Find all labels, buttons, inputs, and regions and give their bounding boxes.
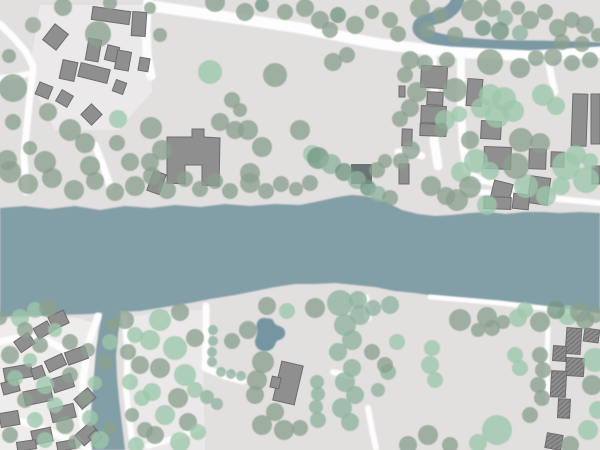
tree — [510, 58, 530, 78]
tree — [86, 172, 104, 190]
building — [427, 92, 444, 106]
tree — [149, 309, 171, 331]
tree — [125, 176, 145, 196]
tree — [522, 407, 538, 423]
tree — [140, 117, 162, 139]
tree — [443, 78, 467, 102]
tree — [310, 412, 326, 428]
tree — [236, 371, 246, 381]
tree — [236, 3, 254, 21]
tree — [226, 121, 244, 139]
tree — [246, 386, 264, 404]
tree — [82, 410, 98, 426]
tree — [240, 163, 260, 183]
tree — [32, 337, 48, 353]
tree — [186, 329, 204, 347]
building-hatched — [583, 328, 600, 343]
tree — [547, 97, 565, 115]
tree — [424, 340, 440, 356]
tree — [503, 153, 529, 179]
tree — [131, 356, 149, 374]
tree — [121, 153, 139, 171]
tree — [158, 181, 176, 199]
tree — [0, 161, 21, 183]
tree — [447, 27, 463, 43]
tree — [322, 22, 338, 38]
tree — [327, 290, 353, 316]
tree — [25, 17, 41, 33]
tree — [389, 334, 405, 350]
tree — [1, 346, 19, 364]
tree — [439, 52, 455, 68]
tree — [496, 315, 510, 329]
tree — [329, 343, 347, 361]
tree — [81, 343, 95, 357]
tree — [78, 391, 92, 405]
tree — [75, 133, 95, 153]
tree — [532, 347, 548, 363]
tree — [207, 357, 217, 367]
tree — [23, 353, 37, 367]
tree — [143, 383, 161, 401]
tree — [109, 110, 127, 128]
tree — [365, 5, 379, 19]
tree — [23, 141, 37, 155]
tree — [277, 4, 293, 20]
tree — [582, 52, 598, 68]
tree — [62, 334, 78, 350]
tree — [252, 351, 274, 373]
tree — [2, 427, 18, 443]
tree — [2, 49, 16, 63]
building — [270, 376, 281, 389]
tree — [48, 323, 62, 337]
tree — [42, 168, 62, 188]
tree — [27, 412, 43, 428]
tree — [302, 175, 318, 191]
tree — [392, 111, 408, 127]
tree — [122, 374, 138, 390]
tree — [198, 60, 222, 84]
building-hatched — [550, 371, 566, 398]
tree — [481, 162, 499, 180]
tree — [274, 420, 294, 440]
tree — [68, 435, 82, 449]
building — [114, 50, 131, 71]
tree — [140, 330, 160, 350]
tree — [574, 36, 590, 52]
tree — [144, 2, 156, 14]
tree — [56, 416, 74, 434]
tree — [309, 400, 323, 414]
tree — [365, 300, 381, 316]
tree — [37, 432, 53, 448]
tree — [106, 183, 124, 201]
tree — [233, 103, 247, 117]
tree — [341, 413, 359, 431]
tree — [528, 50, 544, 66]
map-canvas[interactable] — [0, 0, 600, 450]
tree — [177, 171, 193, 187]
tree — [155, 405, 175, 425]
tree — [258, 297, 276, 315]
tree — [554, 34, 570, 50]
tree — [153, 28, 167, 42]
tree — [547, 301, 565, 319]
tree — [421, 356, 439, 374]
tree — [381, 296, 399, 314]
tree — [578, 420, 598, 440]
building-hatched — [565, 357, 584, 376]
tree — [103, 421, 117, 435]
tree — [418, 425, 438, 445]
tree — [190, 424, 206, 440]
tree — [64, 180, 84, 200]
tree — [168, 388, 188, 408]
tree — [310, 375, 324, 389]
tree — [85, 21, 111, 47]
tree — [163, 336, 187, 360]
building — [59, 60, 78, 82]
tree — [109, 135, 125, 151]
tree — [576, 16, 594, 34]
tree — [207, 173, 223, 189]
tree — [279, 303, 295, 319]
tree — [192, 181, 208, 197]
building-hatched — [545, 433, 563, 450]
building — [591, 94, 600, 144]
tree — [427, 372, 443, 388]
tree — [226, 369, 236, 379]
building — [138, 57, 150, 72]
building-hatched — [558, 399, 571, 419]
tree — [461, 131, 479, 149]
building — [399, 86, 405, 97]
tree — [216, 367, 226, 377]
tree — [432, 7, 448, 23]
tree — [102, 334, 118, 350]
tree — [417, 55, 433, 71]
tree — [477, 307, 497, 327]
tree — [290, 120, 310, 140]
tree — [97, 354, 113, 370]
tree — [451, 106, 467, 122]
tree — [62, 367, 78, 383]
tree — [273, 176, 289, 192]
tree — [208, 336, 218, 346]
tree — [434, 123, 448, 137]
tree — [18, 174, 38, 194]
tree — [390, 26, 406, 42]
tree — [305, 298, 325, 318]
tree — [211, 398, 223, 410]
tree — [7, 370, 23, 386]
tree — [477, 195, 497, 215]
tree — [461, 0, 483, 21]
tree — [491, 22, 509, 40]
tree — [146, 426, 164, 444]
tree — [446, 189, 468, 211]
tree — [47, 397, 63, 413]
tree — [475, 20, 491, 36]
tree — [530, 312, 550, 332]
tree — [39, 103, 57, 121]
tree — [537, 4, 553, 20]
tree — [292, 420, 308, 436]
tree — [534, 390, 550, 406]
tree — [535, 362, 551, 378]
tree — [36, 376, 54, 394]
tree — [289, 182, 303, 196]
tree — [419, 22, 435, 38]
tree — [171, 303, 189, 321]
tree — [449, 309, 471, 331]
tree — [564, 55, 580, 71]
tree — [339, 47, 355, 63]
tree — [393, 153, 409, 169]
building — [131, 12, 147, 37]
tree — [582, 153, 598, 169]
tree — [88, 376, 102, 390]
tree — [224, 333, 240, 349]
tree — [120, 344, 136, 360]
tree — [143, 167, 161, 185]
tree — [346, 16, 364, 34]
tree — [266, 403, 284, 421]
tree — [530, 133, 550, 153]
tree — [17, 322, 33, 338]
tree — [377, 357, 393, 373]
tree — [401, 51, 419, 69]
tree — [512, 25, 528, 41]
tree — [39, 299, 57, 317]
building — [571, 94, 588, 146]
tree — [544, 48, 562, 66]
tree — [364, 344, 380, 360]
tree — [5, 114, 21, 130]
tree — [573, 167, 599, 193]
tree — [378, 154, 392, 168]
tree — [471, 98, 491, 118]
tree — [509, 128, 533, 152]
tree — [382, 12, 398, 28]
tree — [263, 63, 287, 87]
tree — [330, 7, 346, 23]
tree — [0, 74, 27, 102]
tree — [570, 302, 590, 322]
tree — [397, 67, 413, 83]
tree — [252, 137, 272, 157]
tree — [511, 1, 525, 15]
tree — [371, 383, 385, 397]
tree — [208, 325, 218, 335]
tree — [477, 49, 503, 75]
building-hatched — [565, 328, 582, 355]
tree — [311, 387, 325, 401]
tree — [17, 392, 33, 408]
map-viewport[interactable] — [0, 0, 600, 450]
building-hatched — [552, 346, 566, 362]
building — [0, 410, 20, 427]
tree — [116, 311, 134, 329]
tree — [150, 358, 170, 378]
tree — [382, 190, 398, 206]
tree — [222, 183, 238, 199]
tree — [239, 321, 257, 339]
tree — [512, 360, 528, 376]
tree — [258, 183, 274, 199]
tree — [517, 302, 533, 318]
tree — [125, 408, 139, 422]
road-segment — [205, 306, 206, 368]
tree — [207, 347, 217, 357]
